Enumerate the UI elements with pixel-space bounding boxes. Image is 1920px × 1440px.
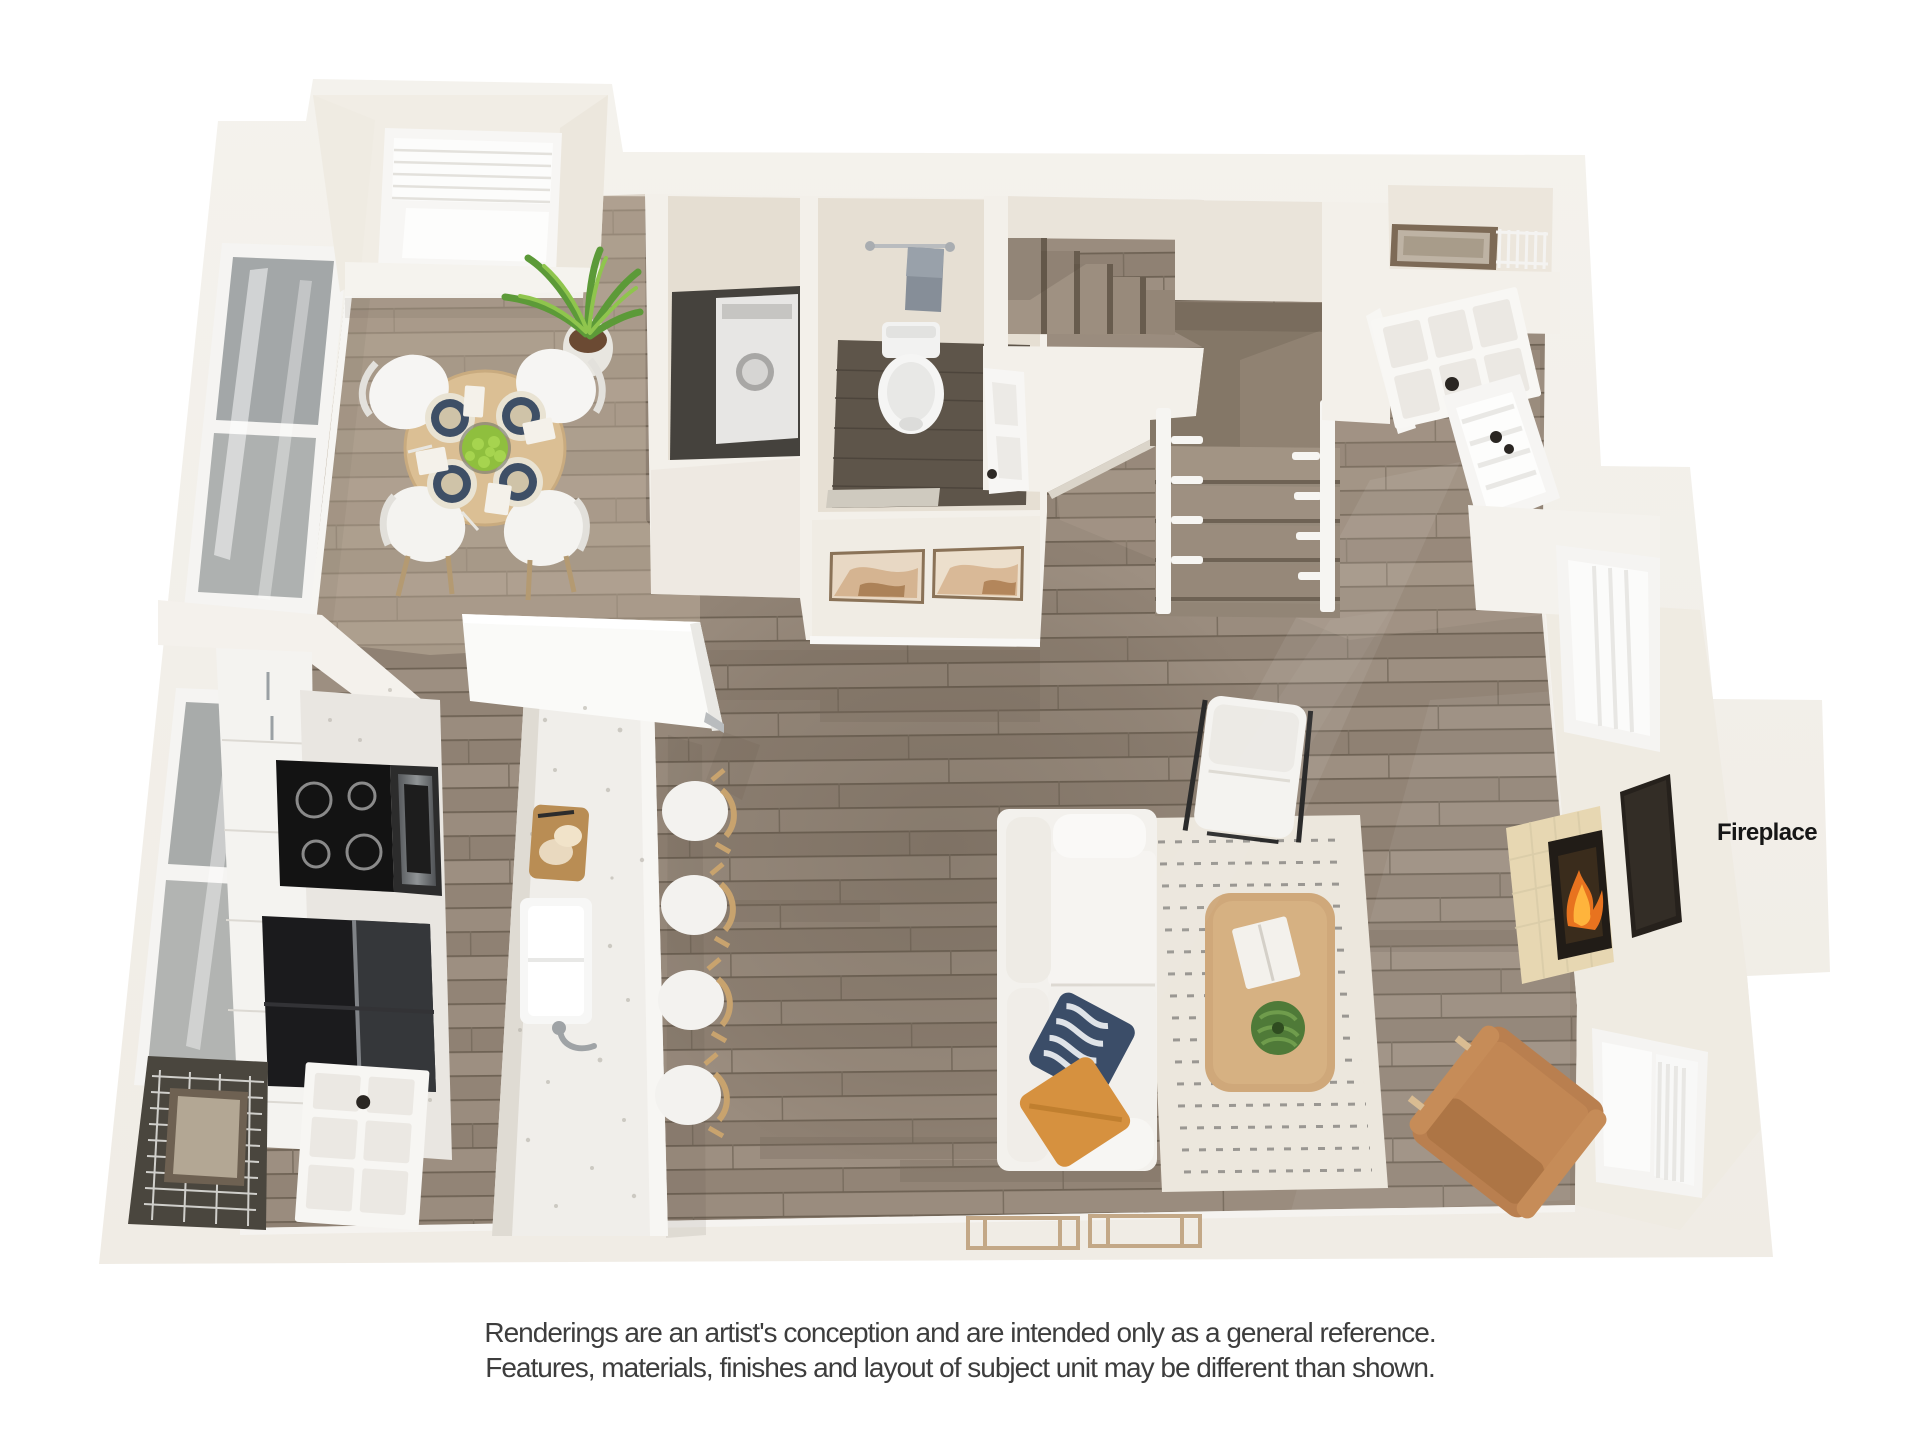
svg-text:Features, materials, finishes: Features, materials, finishes and layout… [485,1352,1435,1383]
svg-text:Renderings are an artist's con: Renderings are an artist's conception an… [484,1317,1435,1348]
svg-text:Fireplace: Fireplace [1717,819,1817,846]
